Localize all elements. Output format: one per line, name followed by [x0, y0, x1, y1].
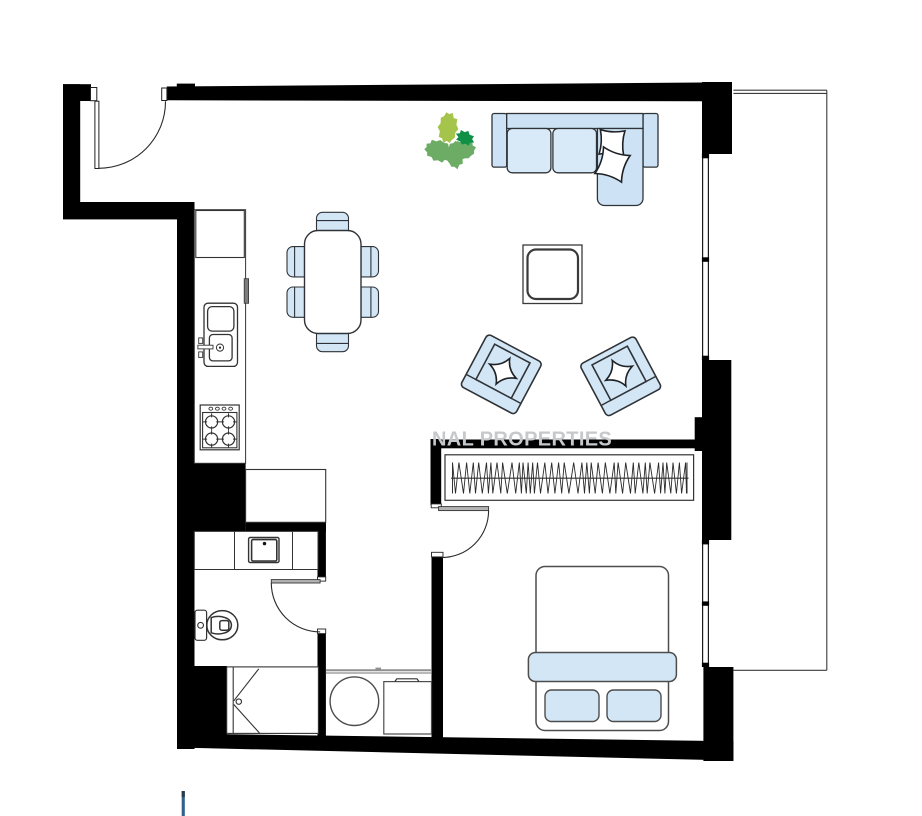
svg-text:NAL PROPERTIES: NAL PROPERTIES [432, 429, 612, 451]
